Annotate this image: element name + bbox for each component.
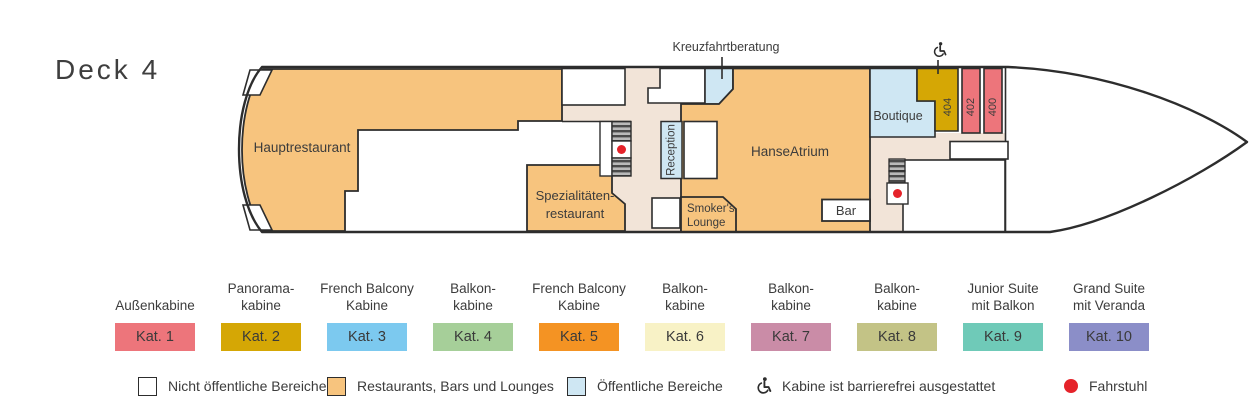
legend-non-public: Nicht öffentliche Bereiche bbox=[138, 375, 327, 397]
category-item-kat1: Außenkabine Kat. 1 bbox=[102, 278, 208, 351]
public-swatch bbox=[567, 377, 586, 396]
legend-public: Öffentliche Bereiche bbox=[567, 375, 723, 397]
room-label-boutique: Boutique bbox=[873, 109, 922, 123]
room-label-hanseatrium: HanseAtrium bbox=[751, 144, 829, 159]
room-label-kreuzfahrtberatung: Kreuzfahrtberatung bbox=[672, 40, 779, 54]
room-label-hauptrestaurant: Hauptrestaurant bbox=[254, 140, 351, 155]
category-item-kat9: Junior Suitemit Balkon Kat. 9 bbox=[950, 278, 1056, 351]
room-label-bar: Bar bbox=[836, 203, 857, 218]
category-swatch-kat1: Kat. 1 bbox=[115, 323, 195, 351]
room-label-smokers-2: Lounge bbox=[687, 217, 725, 229]
legend-elevator: Fahrstuhl bbox=[1064, 375, 1147, 397]
stairs-icon bbox=[612, 158, 631, 176]
room-label-spezialitaeten-1: Spezialitäten- bbox=[536, 188, 615, 203]
stairs-room bbox=[600, 122, 612, 177]
wheelchair-icon bbox=[751, 375, 773, 397]
non-public-room bbox=[562, 69, 625, 106]
restaurants-swatch bbox=[327, 377, 346, 396]
legend-accessible: Kabine ist barrierefrei ausgestattet bbox=[751, 375, 995, 397]
category-item-kat6: Balkon-kabine Kat. 6 bbox=[632, 278, 738, 351]
category-item-kat5: French BalconyKabine Kat. 5 bbox=[526, 278, 632, 351]
non-public-swatch bbox=[138, 377, 157, 396]
category-swatch-kat8: Kat. 8 bbox=[857, 323, 937, 351]
category-item-kat4: Balkon-kabine Kat. 4 bbox=[420, 278, 526, 351]
cabin-label-402: 402 bbox=[965, 98, 977, 116]
category-swatch-kat5: Kat. 5 bbox=[539, 323, 619, 351]
elevator-dot bbox=[617, 145, 626, 154]
category-swatch-kat2: Kat. 2 bbox=[221, 323, 301, 351]
category-swatch-kat4: Kat. 4 bbox=[433, 323, 513, 351]
category-swatch-kat7: Kat. 7 bbox=[751, 323, 831, 351]
room-label-spezialitaeten-2: restaurant bbox=[546, 206, 605, 221]
category-swatch-kat6: Kat. 6 bbox=[645, 323, 725, 351]
stairs-icon bbox=[889, 171, 905, 183]
category-item-kat2: Panorama-kabine Kat. 2 bbox=[208, 278, 314, 351]
room-label-reception: Reception bbox=[666, 124, 678, 176]
non-public-room bbox=[903, 160, 1005, 232]
stairs-icon bbox=[889, 159, 905, 171]
category-item-kat8: Balkon-kabine Kat. 8 bbox=[844, 278, 950, 351]
elevator-dot bbox=[893, 189, 902, 198]
deck-plan-svg: Hauptrestaurant Spezialitäten- restauran… bbox=[0, 0, 1256, 262]
cabin-label-400: 400 bbox=[987, 98, 999, 116]
category-legend: Außenkabine Kat. 1 Panorama-kabine Kat. … bbox=[102, 278, 1162, 351]
category-item-kat3: French BalconyKabine Kat. 3 bbox=[314, 278, 420, 351]
category-item-kat7: Balkon-kabine Kat. 7 bbox=[738, 278, 844, 351]
non-public-room bbox=[684, 122, 717, 179]
deck-plan: Hauptrestaurant Spezialitäten- restauran… bbox=[0, 0, 1256, 262]
stairs-icon bbox=[612, 122, 631, 142]
non-public-room bbox=[652, 198, 680, 228]
legend-restaurants: Restaurants, Bars und Lounges bbox=[327, 375, 554, 397]
non-public-room bbox=[950, 142, 1008, 160]
elevator-dot bbox=[1064, 379, 1078, 393]
wheelchair-icon bbox=[935, 42, 946, 56]
category-swatch-kat10: Kat. 10 bbox=[1069, 323, 1149, 351]
room-label-smokers-1: Smoker's bbox=[687, 203, 735, 215]
cabin-label-404: 404 bbox=[942, 98, 954, 116]
category-swatch-kat9: Kat. 9 bbox=[963, 323, 1043, 351]
category-item-kat10: Grand Suitemit Veranda Kat. 10 bbox=[1056, 278, 1162, 351]
category-swatch-kat3: Kat. 3 bbox=[327, 323, 407, 351]
